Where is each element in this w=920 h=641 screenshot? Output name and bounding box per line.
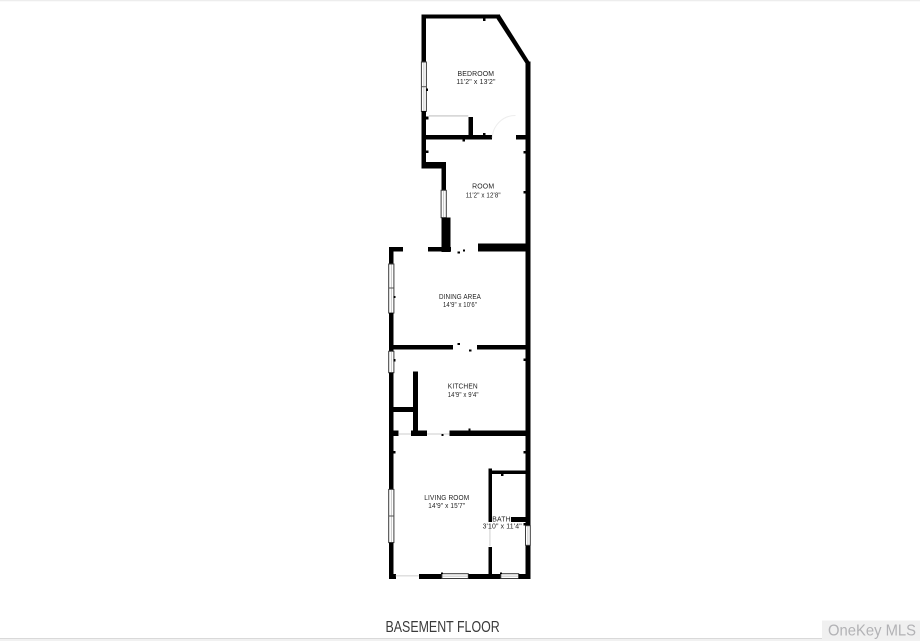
svg-text:14'9" x 15'7": 14'9" x 15'7" (428, 503, 465, 510)
svg-text:11'2" x 12'8": 11'2" x 12'8" (466, 192, 501, 199)
svg-text:KITCHEN: KITCHEN (448, 383, 478, 390)
svg-text:DINING AREA: DINING AREA (439, 294, 481, 301)
svg-text:BEDROOM: BEDROOM (457, 71, 494, 78)
svg-text:OneKey MLS: OneKey MLS (828, 623, 916, 640)
svg-text:11'2" x 13'2": 11'2" x 13'2" (456, 79, 496, 86)
svg-text:ROOM: ROOM (472, 184, 494, 191)
svg-text:BATH: BATH (492, 516, 510, 523)
svg-text:14'9" x 9'4": 14'9" x 9'4" (448, 392, 479, 399)
svg-text:14'9" x 10'6": 14'9" x 10'6" (443, 302, 477, 309)
svg-text:LIVING ROOM: LIVING ROOM (424, 495, 469, 502)
svg-text:BASEMENT FLOOR: BASEMENT FLOOR (386, 619, 500, 636)
svg-text:3'10" x 11'4": 3'10" x 11'4" (483, 524, 523, 531)
